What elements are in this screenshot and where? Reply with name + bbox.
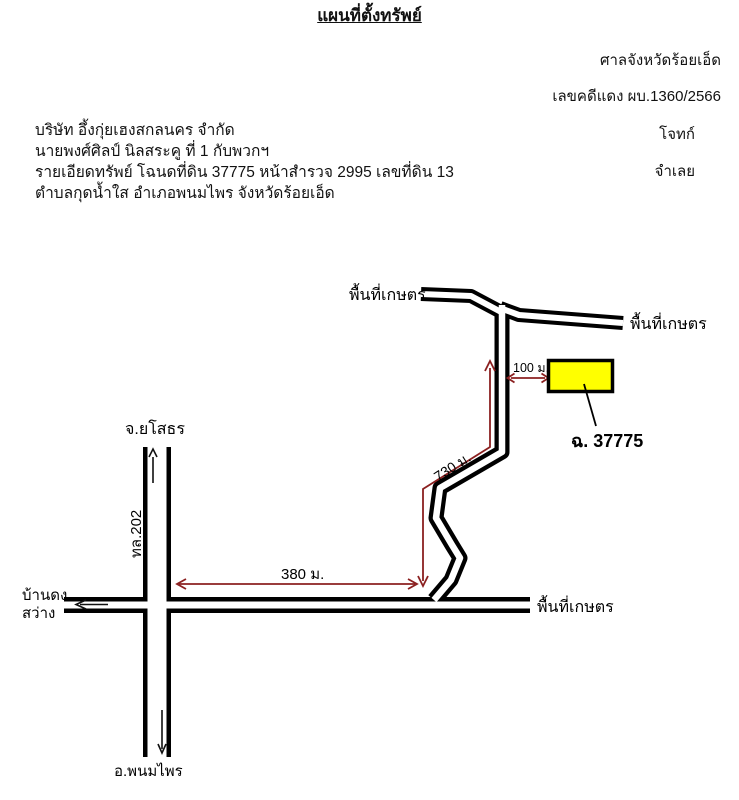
label-highway-202: ทล.202 [128,510,145,558]
label-ban-dong: บ้านดง [22,587,67,604]
property-location-map: พื้นที่เกษตร พื้นที่เกษตร พื้นที่เกษตร จ… [0,0,739,800]
label-yasothon: จ.ยโสธร [125,419,185,438]
label-parcel-number: ฉ. 37775 [571,431,643,451]
label-phanom-phrai: อ.พนมไพร [114,762,183,780]
measurement-arrows [177,361,549,589]
label-agri-bottom-right: พื้นที่เกษตร [537,595,614,616]
label-distance-100m: 100 ม. [513,361,549,375]
label-agri-top-left: พื้นที่เกษตร [349,283,426,304]
parcel-rectangle [549,361,613,392]
label-agri-top-right: พื้นที่เกษตร [630,312,707,333]
road-access-winding [434,305,502,600]
label-sawang: สว่าง [22,605,55,622]
label-distance-380m: 380 ม. [281,566,324,583]
